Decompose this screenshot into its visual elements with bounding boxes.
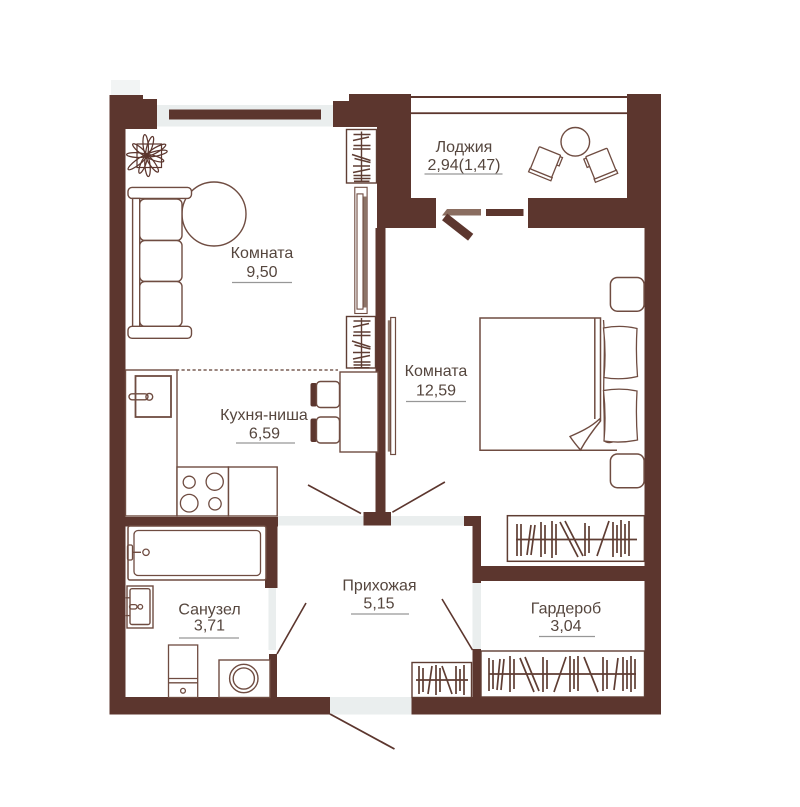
svg-text:Прихожая: Прихожая: [342, 578, 416, 595]
svg-text:3,04: 3,04: [550, 618, 581, 635]
svg-text:Комната: Комната: [231, 245, 294, 262]
svg-text:2,94(1,47): 2,94(1,47): [428, 157, 501, 174]
svg-text:Кухня-ниша: Кухня-ниша: [220, 407, 308, 424]
svg-text:5,15: 5,15: [363, 596, 394, 613]
svg-text:Гардероб: Гардероб: [531, 601, 601, 618]
svg-text:3,71: 3,71: [194, 618, 225, 635]
svg-text:Комната: Комната: [405, 363, 468, 380]
svg-text:9,50: 9,50: [246, 264, 277, 281]
svg-text:12,59: 12,59: [416, 383, 456, 400]
svg-text:Санузел: Санузел: [178, 602, 240, 619]
svg-text:6,59: 6,59: [249, 426, 280, 443]
svg-text:Лоджия: Лоджия: [436, 139, 493, 156]
